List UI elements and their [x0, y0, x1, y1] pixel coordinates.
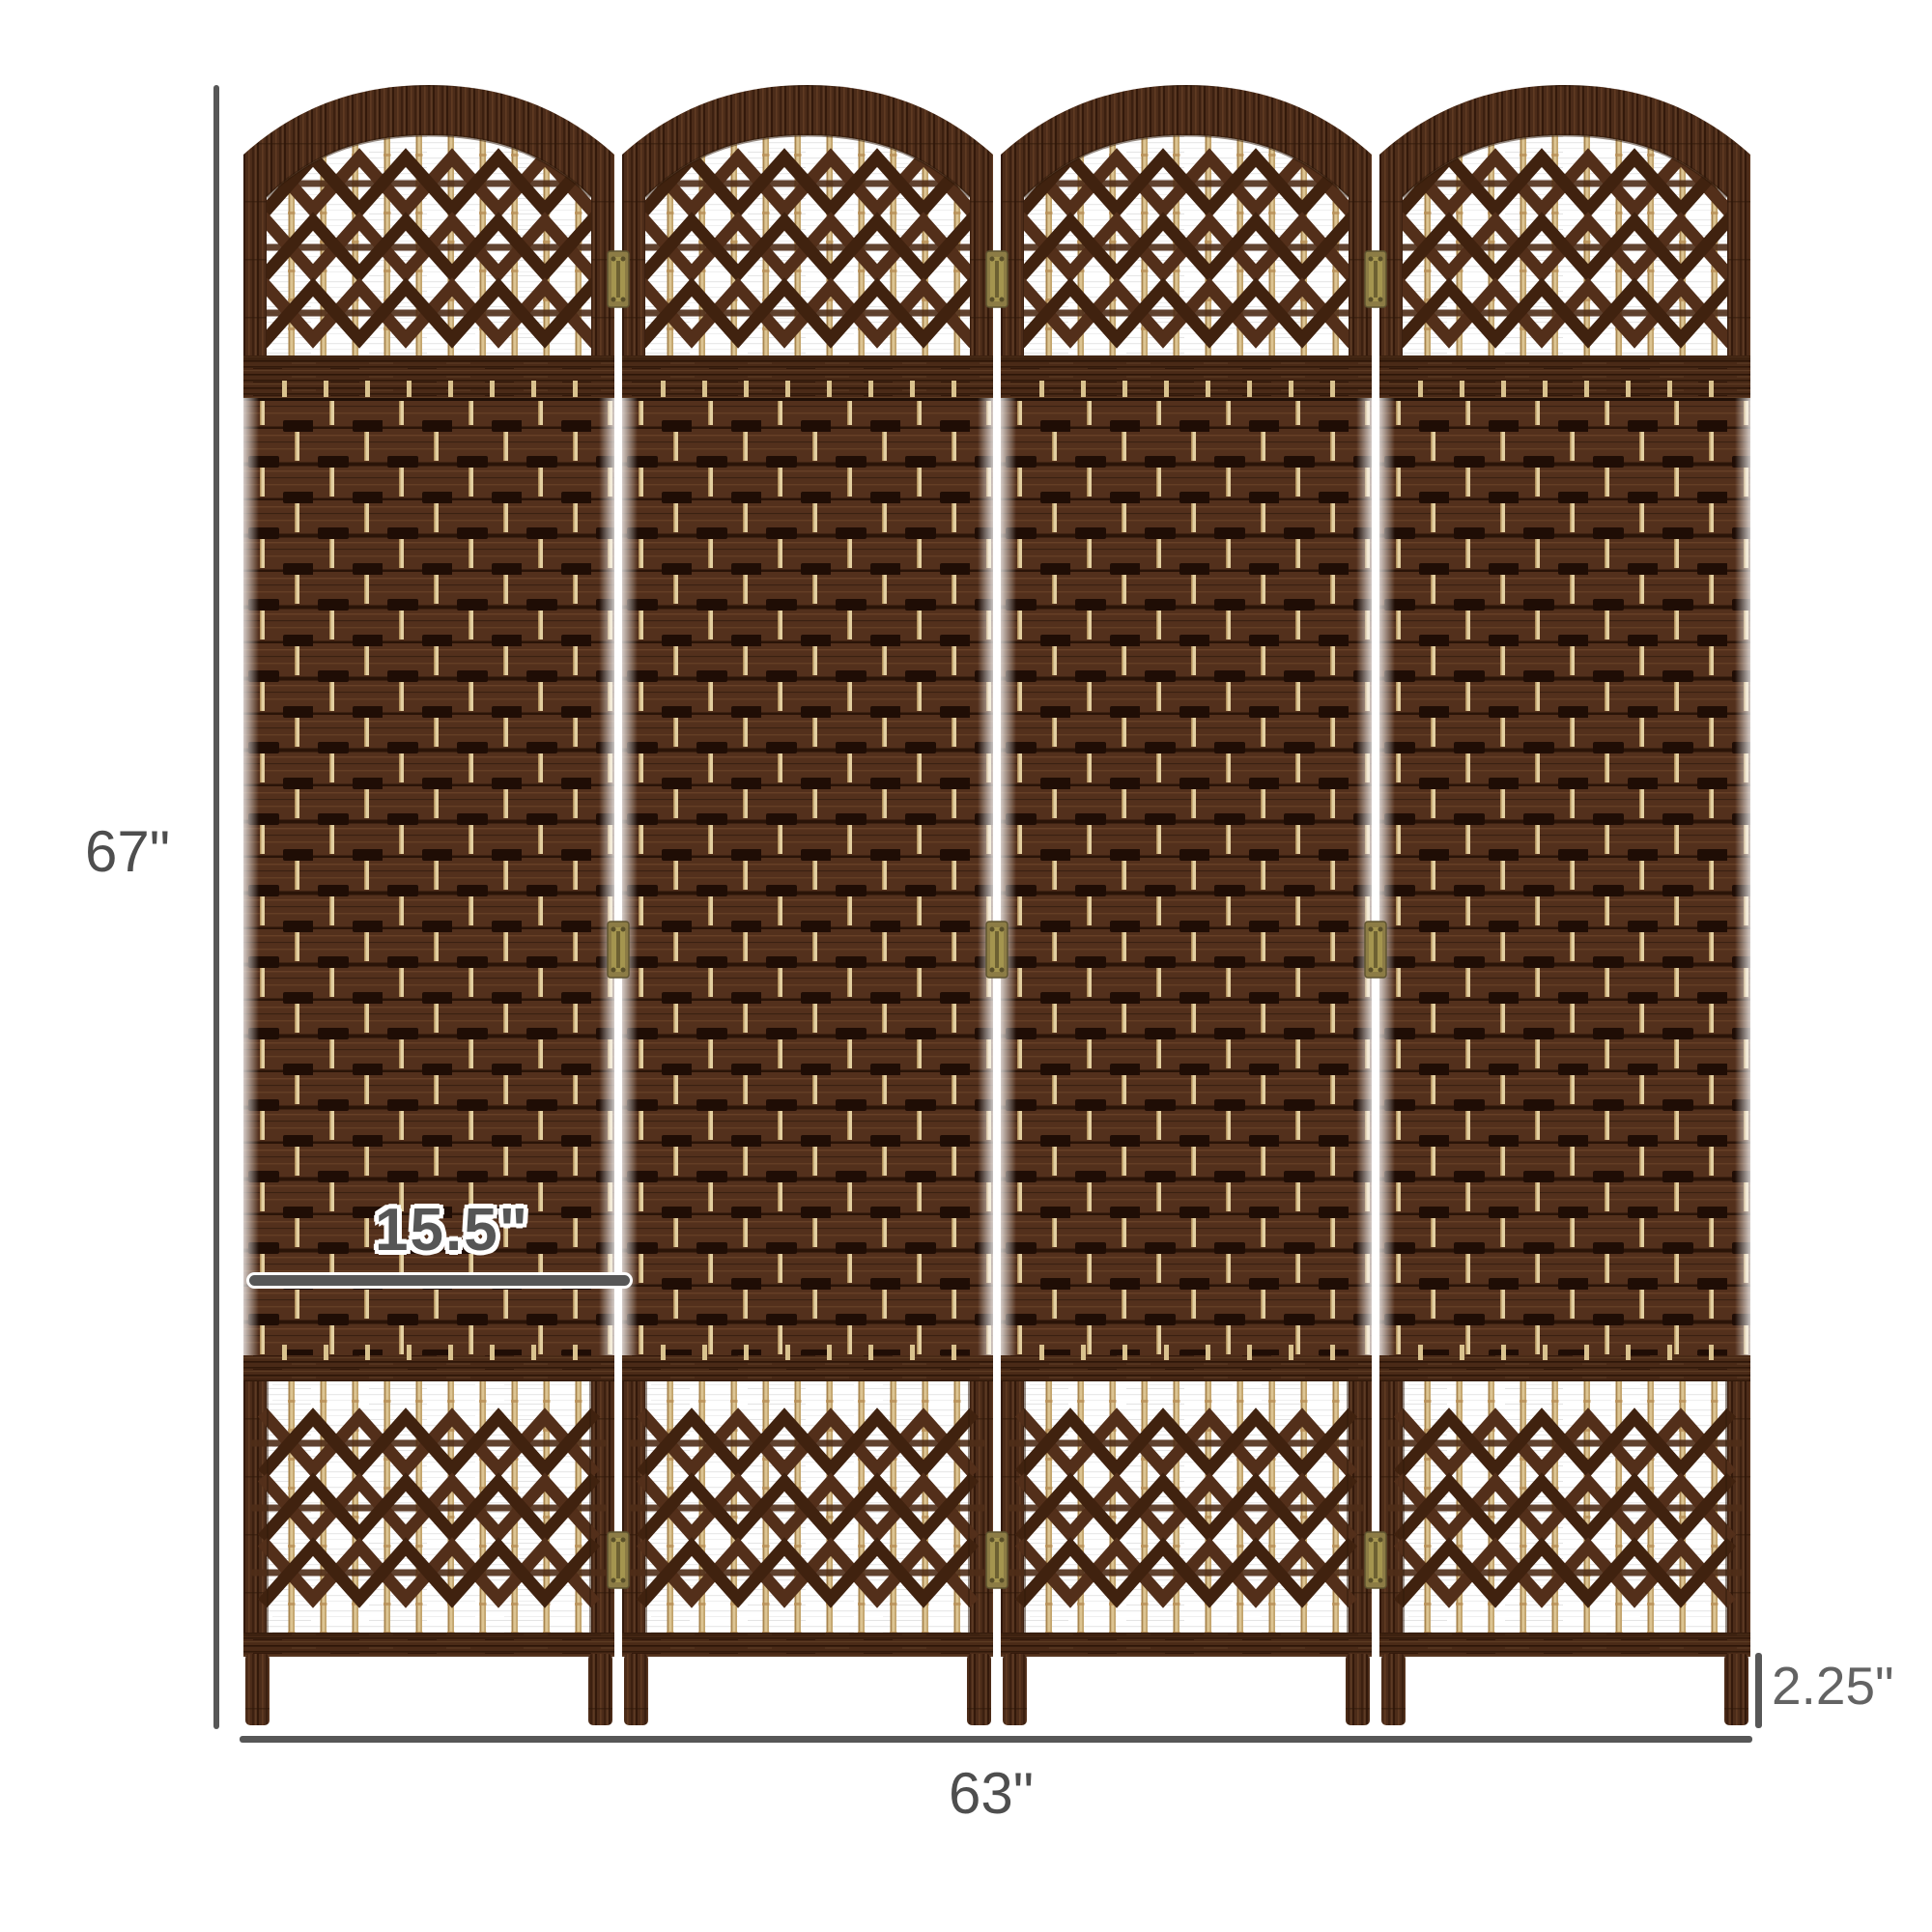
panel-width-dimension-line	[249, 1275, 630, 1286]
product-dimension-diagram: 67" 63" 15.5" 2.25"	[0, 0, 1932, 1932]
divider-panel-4	[1379, 85, 1750, 1725]
hinge	[986, 1532, 1008, 1588]
divider-panel-2	[622, 85, 993, 1725]
panel-width-dimension-label: 15.5"	[375, 1201, 529, 1261]
hinge	[608, 1532, 629, 1588]
height-dimension-line	[213, 85, 219, 1729]
thickness-dimension-line	[1755, 1653, 1762, 1728]
hinge	[608, 251, 629, 307]
width-dimension-label: 63"	[949, 1765, 1034, 1823]
hinge	[986, 251, 1008, 307]
height-dimension-label: 67"	[85, 823, 170, 881]
divider-panel-1	[243, 85, 614, 1725]
hinge	[1365, 1532, 1386, 1588]
hinge	[1365, 251, 1386, 307]
divider-panel-3	[1001, 85, 1372, 1725]
width-dimension-line	[240, 1736, 1752, 1743]
thickness-dimension-label: 2.25"	[1772, 1660, 1894, 1713]
hinge	[608, 922, 629, 978]
room-divider-illustration	[0, 0, 1932, 1932]
hinge	[1365, 922, 1386, 978]
hinge	[986, 922, 1008, 978]
